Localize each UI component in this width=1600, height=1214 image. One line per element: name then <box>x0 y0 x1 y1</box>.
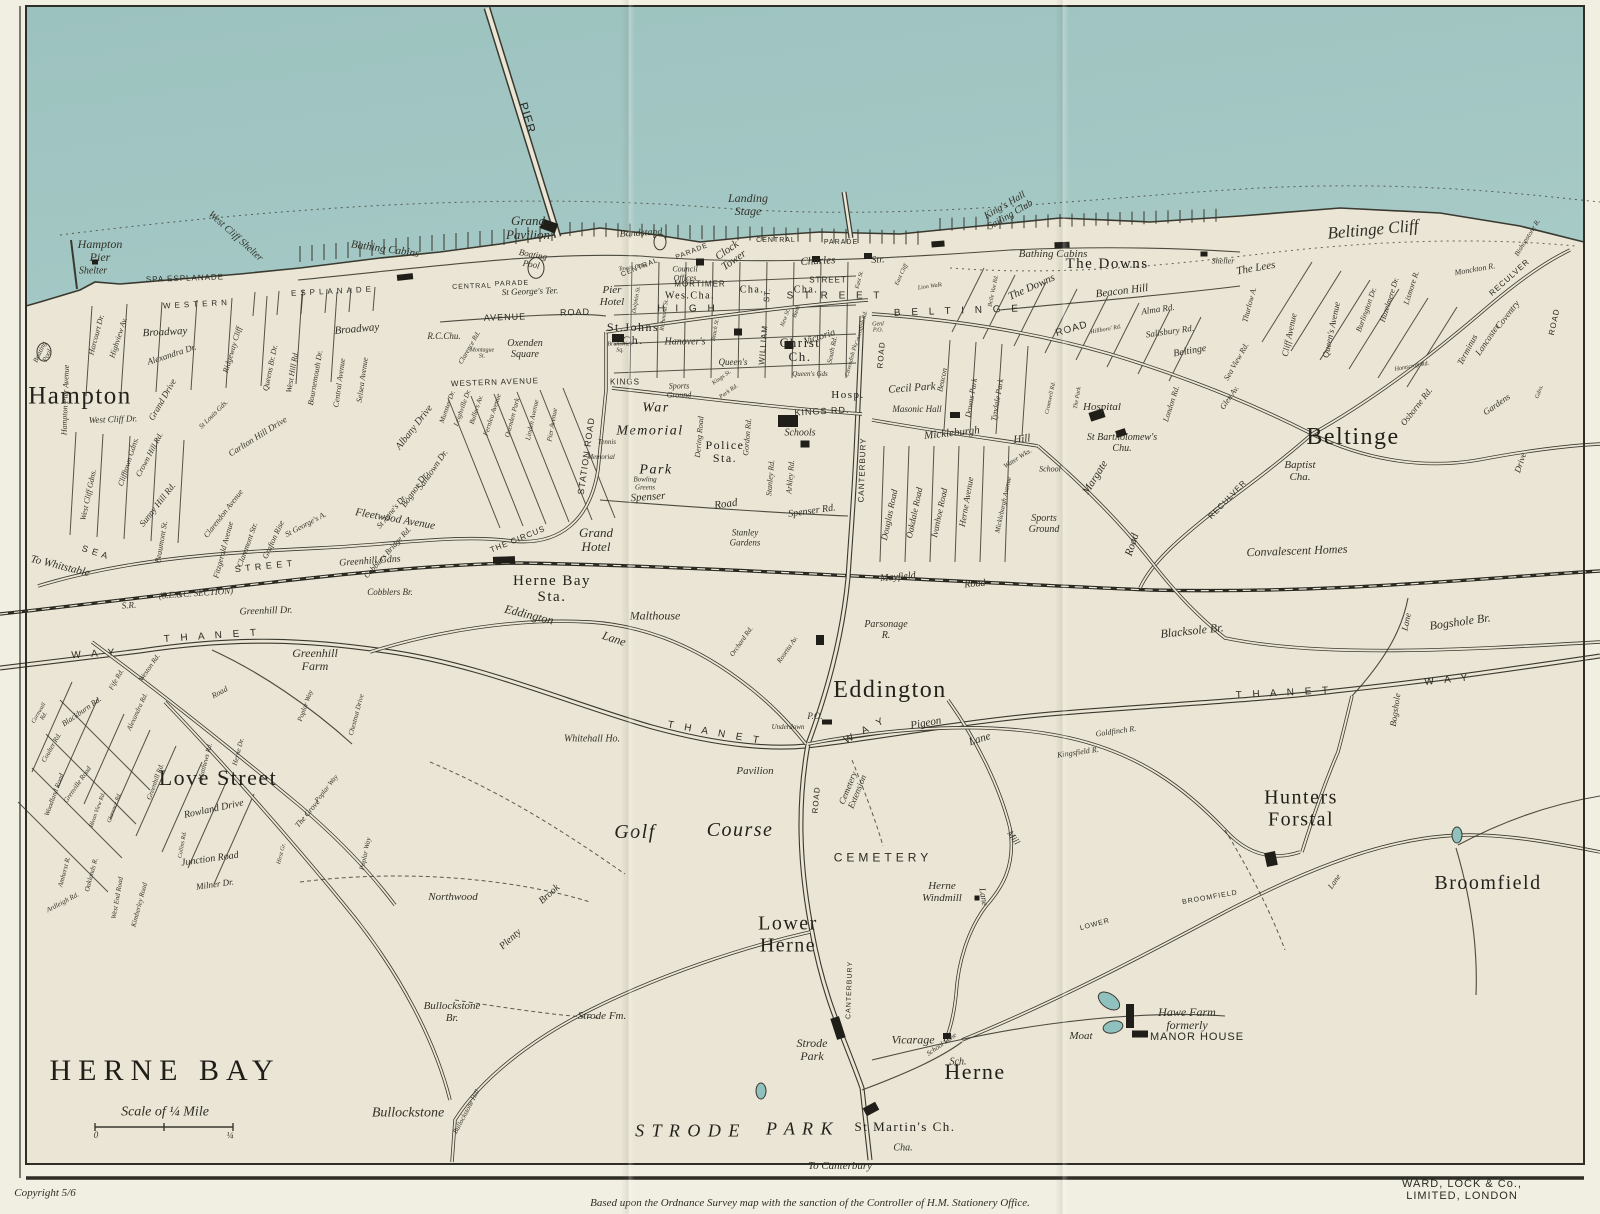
map-sheet: Hampton PierShelterSPA ESPLANADEWest Cli… <box>0 0 1600 1214</box>
map-canvas <box>0 0 1600 1214</box>
